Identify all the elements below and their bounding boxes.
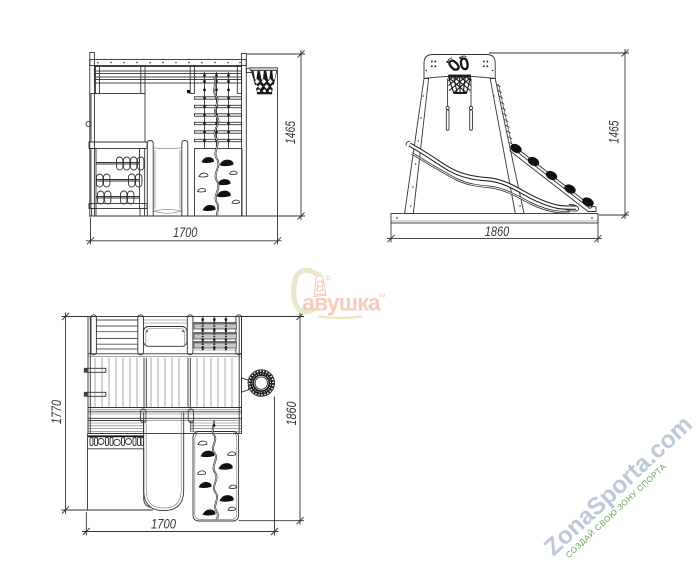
- svg-text:1770: 1770: [49, 400, 64, 424]
- svg-text:1700: 1700: [151, 517, 176, 532]
- svg-text:тм: тм: [379, 294, 386, 300]
- svg-text:1860: 1860: [284, 401, 299, 425]
- svg-text:1465: 1465: [283, 121, 298, 144]
- svg-text:1700: 1700: [173, 225, 198, 240]
- svg-text:1860: 1860: [485, 224, 510, 239]
- svg-text:1465: 1465: [607, 120, 622, 143]
- svg-text:авушка: авушка: [302, 290, 381, 316]
